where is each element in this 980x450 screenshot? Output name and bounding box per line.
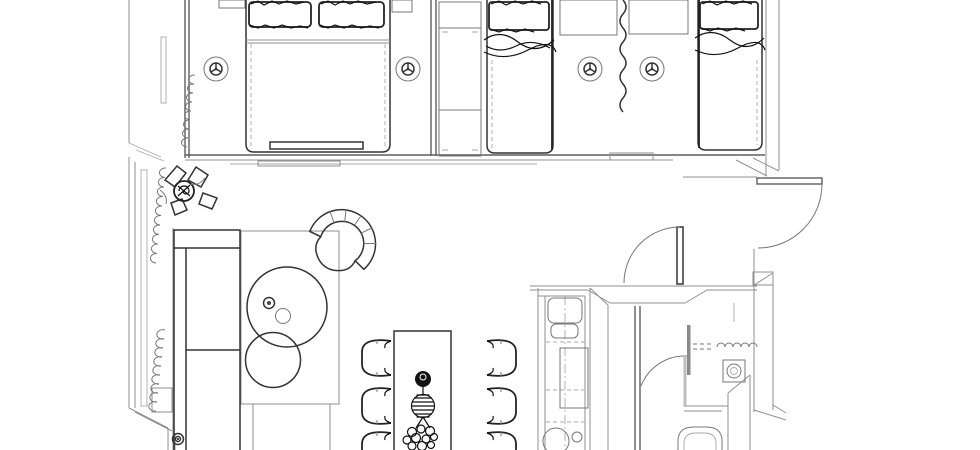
kitchen-counter bbox=[538, 288, 585, 450]
nightstand bbox=[392, 0, 412, 12]
centerpiece bbox=[403, 371, 438, 450]
entrance-door-leaf bbox=[757, 178, 822, 184]
dining-chair bbox=[487, 340, 516, 376]
nightstand bbox=[560, 0, 617, 35]
single-bed bbox=[695, 0, 765, 150]
curtain-coil bbox=[149, 330, 165, 411]
interior-door-leaf bbox=[677, 227, 683, 284]
nightstand bbox=[219, 0, 245, 8]
single-bed bbox=[484, 0, 556, 153]
room-entry-hall bbox=[624, 178, 822, 284]
dining-chair bbox=[487, 388, 516, 424]
shower-curtain bbox=[717, 343, 757, 347]
coffee-table-large bbox=[247, 267, 327, 347]
pillow bbox=[319, 1, 384, 28]
sprinkler-icon bbox=[640, 57, 664, 81]
sprinkler-icon bbox=[204, 57, 228, 81]
double-bed bbox=[246, 0, 390, 152]
rug-runner bbox=[253, 404, 330, 450]
sprinkler-icon bbox=[578, 57, 602, 81]
blanket bbox=[484, 34, 556, 56]
sofa bbox=[174, 230, 240, 450]
curtain-coil bbox=[181, 75, 195, 147]
room-dining bbox=[362, 331, 516, 450]
cooktop-small bbox=[551, 324, 578, 338]
dining-chair bbox=[362, 388, 391, 424]
table-decor bbox=[264, 298, 291, 324]
sprinkler-icon bbox=[396, 57, 420, 81]
toilet bbox=[678, 427, 722, 450]
entrance-door-arc bbox=[758, 184, 822, 248]
dining-chair bbox=[362, 340, 391, 376]
nightstand bbox=[629, 0, 688, 34]
floor-plan-drawing bbox=[0, 0, 980, 450]
floor-plan-canvas bbox=[0, 0, 980, 450]
shower-curtain-track bbox=[693, 344, 714, 349]
room-kitchen bbox=[538, 288, 588, 450]
blanket bbox=[695, 32, 765, 54]
shower-screen bbox=[687, 325, 691, 375]
dining-chair bbox=[487, 432, 516, 450]
pillow bbox=[700, 2, 758, 29]
plant bbox=[160, 166, 217, 215]
room-bathroom bbox=[641, 325, 757, 450]
armchair bbox=[298, 196, 390, 287]
pillow bbox=[489, 2, 549, 30]
kitchen-cabinet bbox=[560, 348, 588, 408]
coffee-table-small bbox=[246, 333, 301, 388]
foot-bench bbox=[270, 142, 363, 149]
curtain-divider bbox=[620, 0, 626, 112]
room-living bbox=[149, 166, 390, 450]
room-master-bedroom bbox=[181, 0, 420, 152]
bathroom-door-arc bbox=[641, 356, 687, 386]
kitchen-sink bbox=[543, 428, 582, 450]
pillow bbox=[249, 1, 311, 28]
curtain-coil bbox=[150, 168, 166, 263]
washing-machine bbox=[723, 360, 745, 382]
room-second-bedroom bbox=[439, 0, 765, 156]
wardrobe bbox=[439, 2, 481, 156]
dining-chair bbox=[362, 432, 391, 450]
interior-door-arc bbox=[624, 227, 680, 283]
shower-screen bbox=[684, 357, 687, 407]
